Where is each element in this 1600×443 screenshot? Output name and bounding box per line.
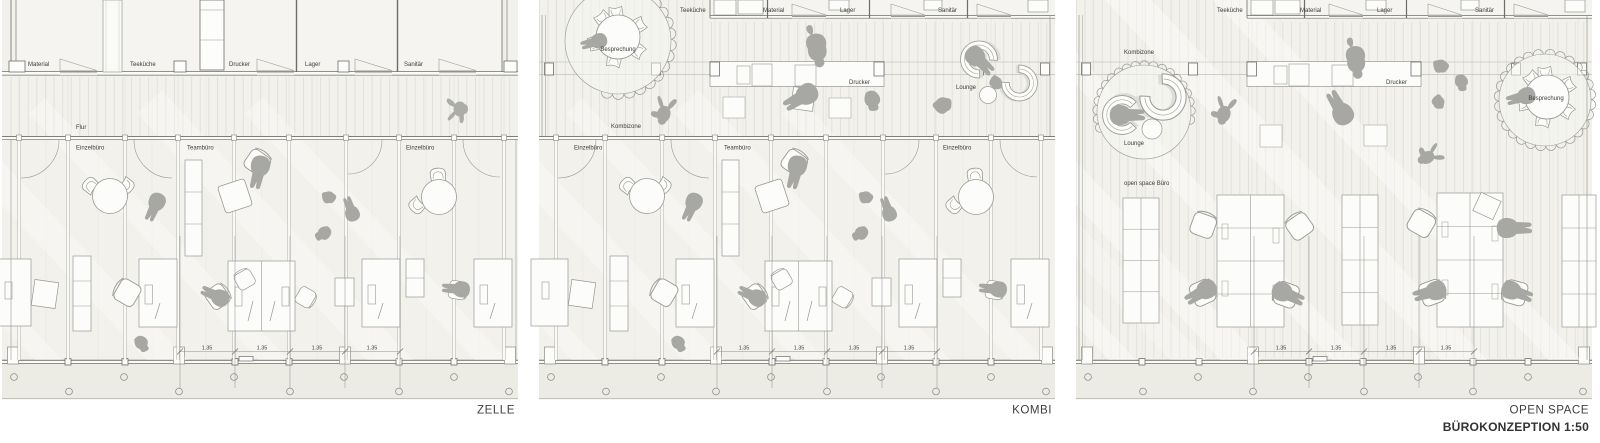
svg-text:open space Büro: open space Büro bbox=[1124, 181, 1170, 187]
svg-text:Kombizone: Kombizone bbox=[1124, 50, 1155, 56]
svg-text:KOMBI: KOMBI bbox=[1012, 404, 1052, 417]
svg-text:1.35: 1.35 bbox=[202, 346, 213, 352]
svg-text:Drucker: Drucker bbox=[1386, 80, 1407, 86]
svg-text:1.35: 1.35 bbox=[367, 346, 378, 352]
svg-text:1.35: 1.35 bbox=[739, 346, 750, 352]
svg-text:Einzelbüro: Einzelbüro bbox=[943, 146, 972, 152]
svg-text:Sanitär: Sanitär bbox=[938, 8, 957, 14]
svg-text:Drucker: Drucker bbox=[849, 80, 870, 86]
svg-text:1.35: 1.35 bbox=[1441, 346, 1452, 352]
svg-text:Flur: Flur bbox=[76, 125, 86, 131]
svg-text:Teambüro: Teambüro bbox=[187, 146, 214, 152]
svg-text:Lager: Lager bbox=[840, 8, 855, 14]
svg-text:Einzelbüro: Einzelbüro bbox=[406, 146, 435, 152]
svg-text:Lounge: Lounge bbox=[956, 85, 977, 91]
svg-text:Sanitär: Sanitär bbox=[1475, 8, 1494, 14]
svg-text:1.35: 1.35 bbox=[1276, 346, 1287, 352]
svg-text:Teeküche: Teeküche bbox=[130, 62, 156, 68]
svg-text:1.35: 1.35 bbox=[904, 346, 915, 352]
svg-text:Teeküche: Teeküche bbox=[1217, 8, 1243, 14]
svg-text:1.35: 1.35 bbox=[1386, 346, 1397, 352]
svg-text:1.35: 1.35 bbox=[257, 346, 268, 352]
svg-text:ZELLE: ZELLE bbox=[477, 404, 515, 417]
svg-text:Kombizone: Kombizone bbox=[611, 124, 642, 130]
svg-text:Material: Material bbox=[763, 8, 784, 14]
svg-text:BÜROKONZEPTION 1:50: BÜROKONZEPTION 1:50 bbox=[1443, 419, 1589, 434]
svg-text:Sanitär: Sanitär bbox=[404, 62, 423, 68]
svg-text:Material: Material bbox=[28, 62, 49, 68]
svg-text:OPEN SPACE: OPEN SPACE bbox=[1509, 404, 1589, 417]
svg-text:1.35: 1.35 bbox=[312, 346, 323, 352]
svg-text:Drucker: Drucker bbox=[229, 62, 250, 68]
svg-text:Lager: Lager bbox=[1377, 8, 1392, 14]
svg-text:Einzelbüro: Einzelbüro bbox=[574, 146, 603, 152]
svg-text:Material: Material bbox=[1300, 8, 1321, 14]
svg-text:1.35: 1.35 bbox=[1331, 346, 1342, 352]
svg-text:Lager: Lager bbox=[305, 62, 320, 68]
svg-text:Teeküche: Teeküche bbox=[680, 8, 706, 14]
svg-text:Besprechung: Besprechung bbox=[1528, 96, 1563, 102]
svg-text:Teambüro: Teambüro bbox=[724, 146, 751, 152]
svg-text:Einzelbüro: Einzelbüro bbox=[76, 146, 105, 152]
svg-text:1.35: 1.35 bbox=[794, 346, 805, 352]
svg-text:Lounge: Lounge bbox=[1124, 141, 1145, 147]
svg-text:1.35: 1.35 bbox=[849, 346, 860, 352]
svg-text:Besprechung: Besprechung bbox=[600, 47, 635, 53]
